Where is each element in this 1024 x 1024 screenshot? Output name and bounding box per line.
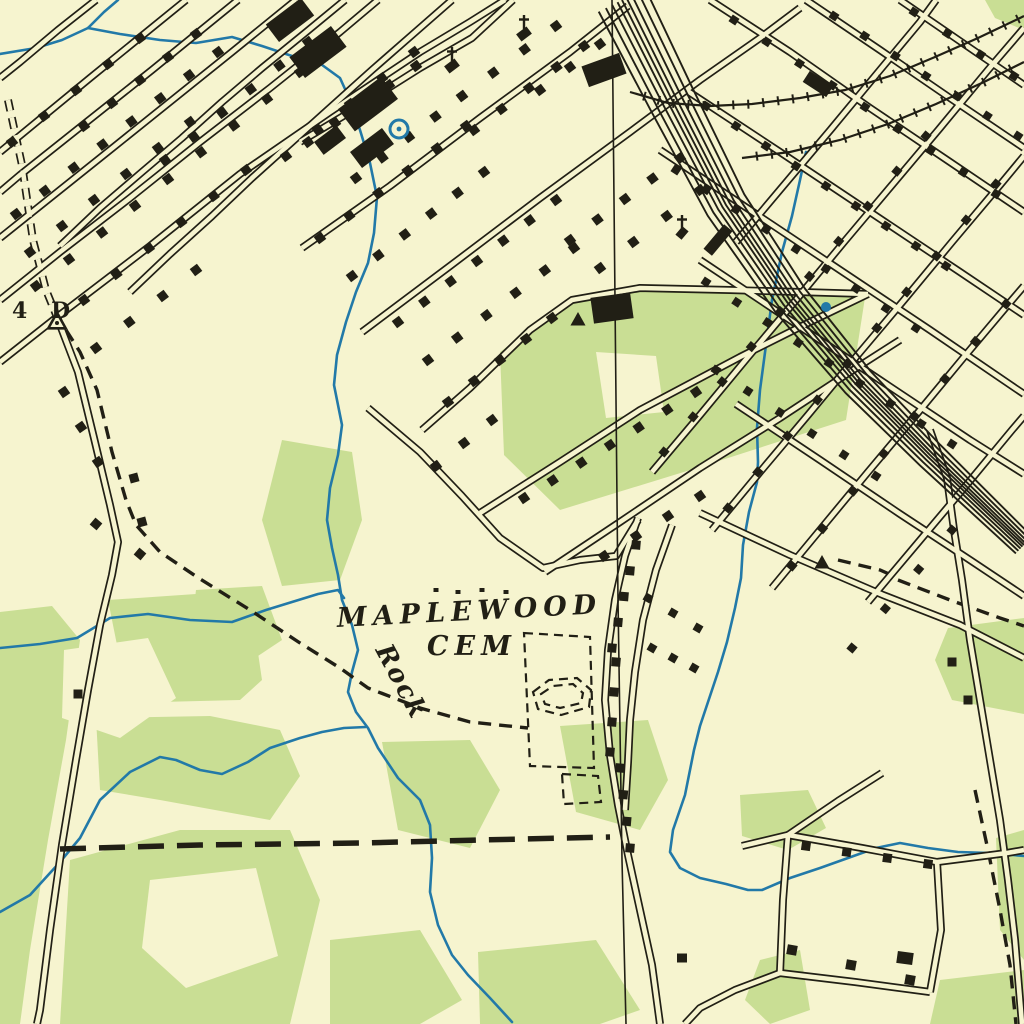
building — [677, 954, 687, 963]
building — [618, 790, 628, 800]
railroad-tick — [688, 100, 689, 109]
building — [609, 687, 619, 697]
railroad-tick — [792, 94, 793, 103]
map-label: CEM — [427, 631, 517, 662]
railroad-tick — [778, 96, 779, 105]
pond — [821, 302, 831, 312]
building — [607, 717, 617, 727]
building — [904, 974, 916, 986]
building — [964, 696, 973, 705]
railroad-tick — [771, 150, 772, 159]
building — [611, 657, 621, 667]
building — [613, 617, 623, 627]
water-tank-icon — [397, 127, 402, 132]
building — [619, 592, 629, 602]
building — [622, 816, 632, 826]
building — [605, 747, 615, 757]
building — [923, 859, 933, 869]
railroad-tick — [756, 152, 757, 161]
building — [607, 643, 617, 653]
building — [896, 951, 914, 965]
building — [590, 292, 633, 323]
map-label: 4 D — [12, 298, 78, 324]
railroad-tick — [763, 98, 764, 107]
building — [786, 944, 798, 956]
building — [74, 690, 83, 699]
topo-map-canvas: MAPLEWOODCEMRock4 D — [0, 0, 1024, 1024]
railroad-tick — [673, 99, 674, 108]
building — [801, 841, 811, 851]
building — [625, 566, 635, 576]
railroad-tick — [786, 148, 787, 157]
building — [882, 853, 892, 863]
clearing — [596, 352, 664, 418]
building — [625, 843, 635, 853]
building — [480, 588, 485, 592]
building — [615, 763, 625, 773]
building — [631, 540, 641, 550]
building — [434, 588, 439, 592]
building — [948, 658, 957, 667]
building — [845, 959, 857, 971]
topo-map: MAPLEWOODCEMRock4 D — [0, 0, 1024, 1024]
building — [456, 590, 461, 594]
building — [842, 847, 852, 857]
